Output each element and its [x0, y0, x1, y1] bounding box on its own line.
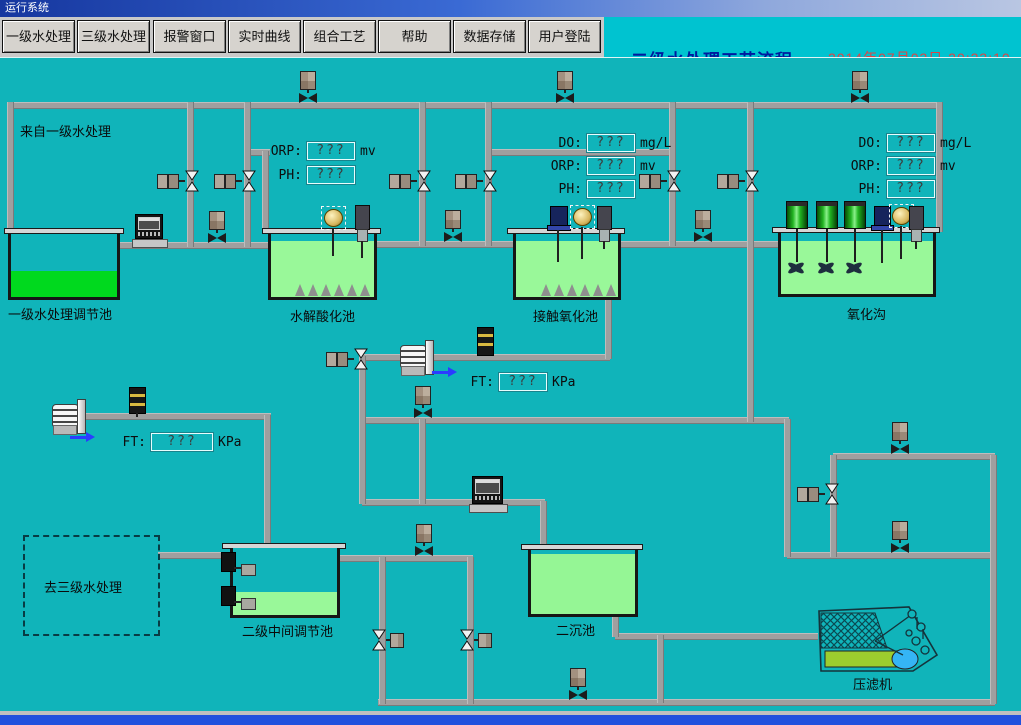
- probe-shaft: [557, 230, 559, 262]
- pipe: [362, 499, 545, 506]
- readout-unit: KPa: [552, 375, 575, 390]
- motor-valve-tank3-outlet[interactable]: [694, 210, 712, 242]
- readout-label: DO:: [546, 136, 582, 151]
- motor-valve-mid-line[interactable]: [414, 386, 432, 418]
- drain-valve-2[interactable]: [460, 629, 492, 651]
- readout-label: PH:: [846, 182, 882, 197]
- propeller-icon: [786, 262, 806, 275]
- readout-ft-mid: FT: ??? KPa: [464, 373, 575, 391]
- tank-water: [11, 271, 117, 297]
- agitator-3[interactable]: [844, 201, 866, 280]
- tank-regulating: [8, 234, 120, 300]
- flow-meter-icon: [472, 476, 508, 513]
- readout-unit: mg/L: [940, 136, 971, 151]
- readout-value[interactable]: ???: [587, 134, 635, 152]
- probe-shaft: [581, 227, 583, 259]
- readout-value[interactable]: ???: [307, 166, 355, 184]
- pipe: [7, 102, 14, 232]
- pipe: [85, 413, 271, 420]
- motor-valve-intermediate-outlet[interactable]: [415, 524, 433, 556]
- butterfly-valve-branch-3[interactable]: [389, 170, 431, 192]
- ph-probe-icon: [597, 206, 612, 230]
- readout-unit: mv: [360, 144, 376, 159]
- pipe: [377, 241, 513, 248]
- pipe: [620, 241, 778, 248]
- motor-valve-tank1-outlet[interactable]: [208, 211, 226, 243]
- readout-ditch-orp: ORP: ??? mv: [846, 157, 956, 175]
- pipe: [359, 356, 366, 504]
- readout-label: ORP:: [546, 159, 582, 174]
- pipe: [747, 102, 754, 422]
- tank-sedimentation: [528, 550, 638, 617]
- readout-ditch-ph: PH: ???: [846, 180, 940, 198]
- motor-valve-tank2-outlet[interactable]: [444, 210, 462, 242]
- pressure-transmitter-icon: [129, 387, 146, 414]
- pipe: [362, 417, 789, 424]
- transmitter-stem: [136, 413, 138, 417]
- readout-value[interactable]: ???: [587, 157, 635, 175]
- taskbar-edge: [0, 715, 1021, 725]
- filter-press-icon[interactable]: [813, 603, 943, 675]
- sensor-box: [241, 564, 256, 576]
- pipe: [8, 102, 942, 109]
- pipe: [612, 615, 619, 637]
- probe-shaft: [603, 241, 605, 249]
- butterfly-valve-pump-line[interactable]: [326, 348, 368, 370]
- sensor-box: [241, 598, 256, 610]
- mixer-motor-icon: [570, 205, 595, 229]
- butterfly-valve-branch-1[interactable]: [157, 170, 199, 192]
- readout-value[interactable]: ???: [499, 373, 547, 391]
- motor-valve-top-1[interactable]: [299, 71, 317, 103]
- motor-valve-right-upper[interactable]: [891, 422, 909, 454]
- pipe: [990, 455, 997, 704]
- readout-value[interactable]: ???: [587, 180, 635, 198]
- pipe: [787, 552, 995, 559]
- probe-shaft: [332, 229, 334, 256]
- readout-unit: mv: [640, 159, 656, 174]
- agitator-1[interactable]: [786, 201, 808, 280]
- flow-arrow-icon: [432, 367, 457, 377]
- pipe: [615, 633, 818, 640]
- readout-value[interactable]: ???: [307, 142, 355, 160]
- readout-contact-orp: ORP: ??? mv: [546, 157, 656, 175]
- scada-window: 运行系统 一级水处理 三级水处理 报警窗口 实时曲线 组合工艺 帮助 数据存储 …: [0, 0, 1021, 725]
- pipe: [340, 555, 473, 562]
- agitator-2[interactable]: [816, 201, 838, 280]
- readout-contact-ph: PH: ???: [546, 180, 640, 198]
- diffusers: [541, 284, 616, 296]
- flow-arrow-icon: [70, 432, 95, 442]
- diffusers: [295, 284, 370, 296]
- tank-label: 二级中间调节池: [242, 621, 333, 640]
- pipe: [262, 151, 269, 231]
- pipe: [657, 635, 664, 703]
- readout-unit: mg/L: [640, 136, 671, 151]
- pipe: [833, 453, 995, 460]
- motor-valve-bottom-line[interactable]: [569, 668, 587, 700]
- pipe: [264, 415, 271, 547]
- level-sensor-icon: [221, 552, 236, 572]
- butterfly-valve-branch-4[interactable]: [455, 170, 497, 192]
- readout-label: FT:: [464, 375, 494, 390]
- readout-value[interactable]: ???: [887, 180, 935, 198]
- readout-value[interactable]: ???: [151, 433, 213, 451]
- propeller-icon: [844, 262, 864, 275]
- process-diagram: 一级水处理调节池 水解酸化池 接触氧化池: [0, 57, 1021, 714]
- tank-label: 水解酸化池: [290, 306, 355, 325]
- tank-label: 接触氧化池: [533, 306, 598, 325]
- mixer-motor-icon: [321, 206, 346, 230]
- ph-probe-icon: [355, 205, 370, 230]
- motor-valve-top-3[interactable]: [851, 71, 869, 103]
- readout-hydrolysis-orp: ORP: ??? mv: [266, 142, 376, 160]
- readout-value[interactable]: ???: [887, 134, 935, 152]
- readout-label: DO:: [846, 136, 882, 151]
- propeller-icon: [816, 262, 836, 275]
- from-primary-label: 来自一级水处理: [20, 121, 111, 140]
- butterfly-valve-right[interactable]: [797, 483, 839, 505]
- pressure-transmitter-icon: [477, 327, 494, 356]
- readout-unit: mv: [940, 159, 956, 174]
- readout-unit: KPa: [218, 435, 241, 450]
- pipe: [419, 419, 426, 504]
- probe-shaft: [915, 241, 917, 249]
- tank-label: 氧化沟: [847, 304, 886, 323]
- pipe: [784, 419, 791, 557]
- readout-ditch-do: DO: ??? mg/L: [846, 134, 971, 152]
- butterfly-valve-branch-2[interactable]: [214, 170, 256, 192]
- tank-label: 二沉池: [556, 620, 595, 639]
- tank-label: 压滤机: [853, 674, 892, 693]
- pipe: [605, 297, 612, 359]
- butterfly-valve-branch-6[interactable]: [717, 170, 759, 192]
- tank-water: [531, 554, 635, 614]
- to-tertiary-label: 去三级水处理: [44, 577, 122, 596]
- readout-label: FT:: [116, 435, 146, 450]
- drain-valve-1[interactable]: [372, 629, 404, 651]
- readout-value[interactable]: ???: [887, 157, 935, 175]
- readout-ft-left: FT: ??? KPa: [116, 433, 241, 451]
- readout-label: PH:: [266, 168, 302, 183]
- readout-label: ORP:: [266, 144, 302, 159]
- probe-shaft: [881, 230, 883, 263]
- readout-label: PH:: [546, 182, 582, 197]
- probe-shaft: [361, 241, 363, 258]
- motor-valve-top-2[interactable]: [556, 71, 574, 103]
- readout-label: ORP:: [846, 159, 882, 174]
- readout-contact-do: DO: ??? mg/L: [546, 134, 671, 152]
- readout-hydrolysis-ph: PH: ???: [266, 166, 360, 184]
- pipe: [158, 552, 230, 559]
- level-sensor-icon: [221, 586, 236, 606]
- ph-probe-icon: [909, 206, 924, 230]
- pipe: [830, 455, 837, 557]
- flow-meter-icon: [135, 214, 168, 248]
- motor-valve-right-lower[interactable]: [891, 521, 909, 553]
- tank-label: 一级水处理调节池: [8, 304, 112, 323]
- sensor-base: [547, 225, 571, 231]
- probe-shaft: [900, 226, 902, 259]
